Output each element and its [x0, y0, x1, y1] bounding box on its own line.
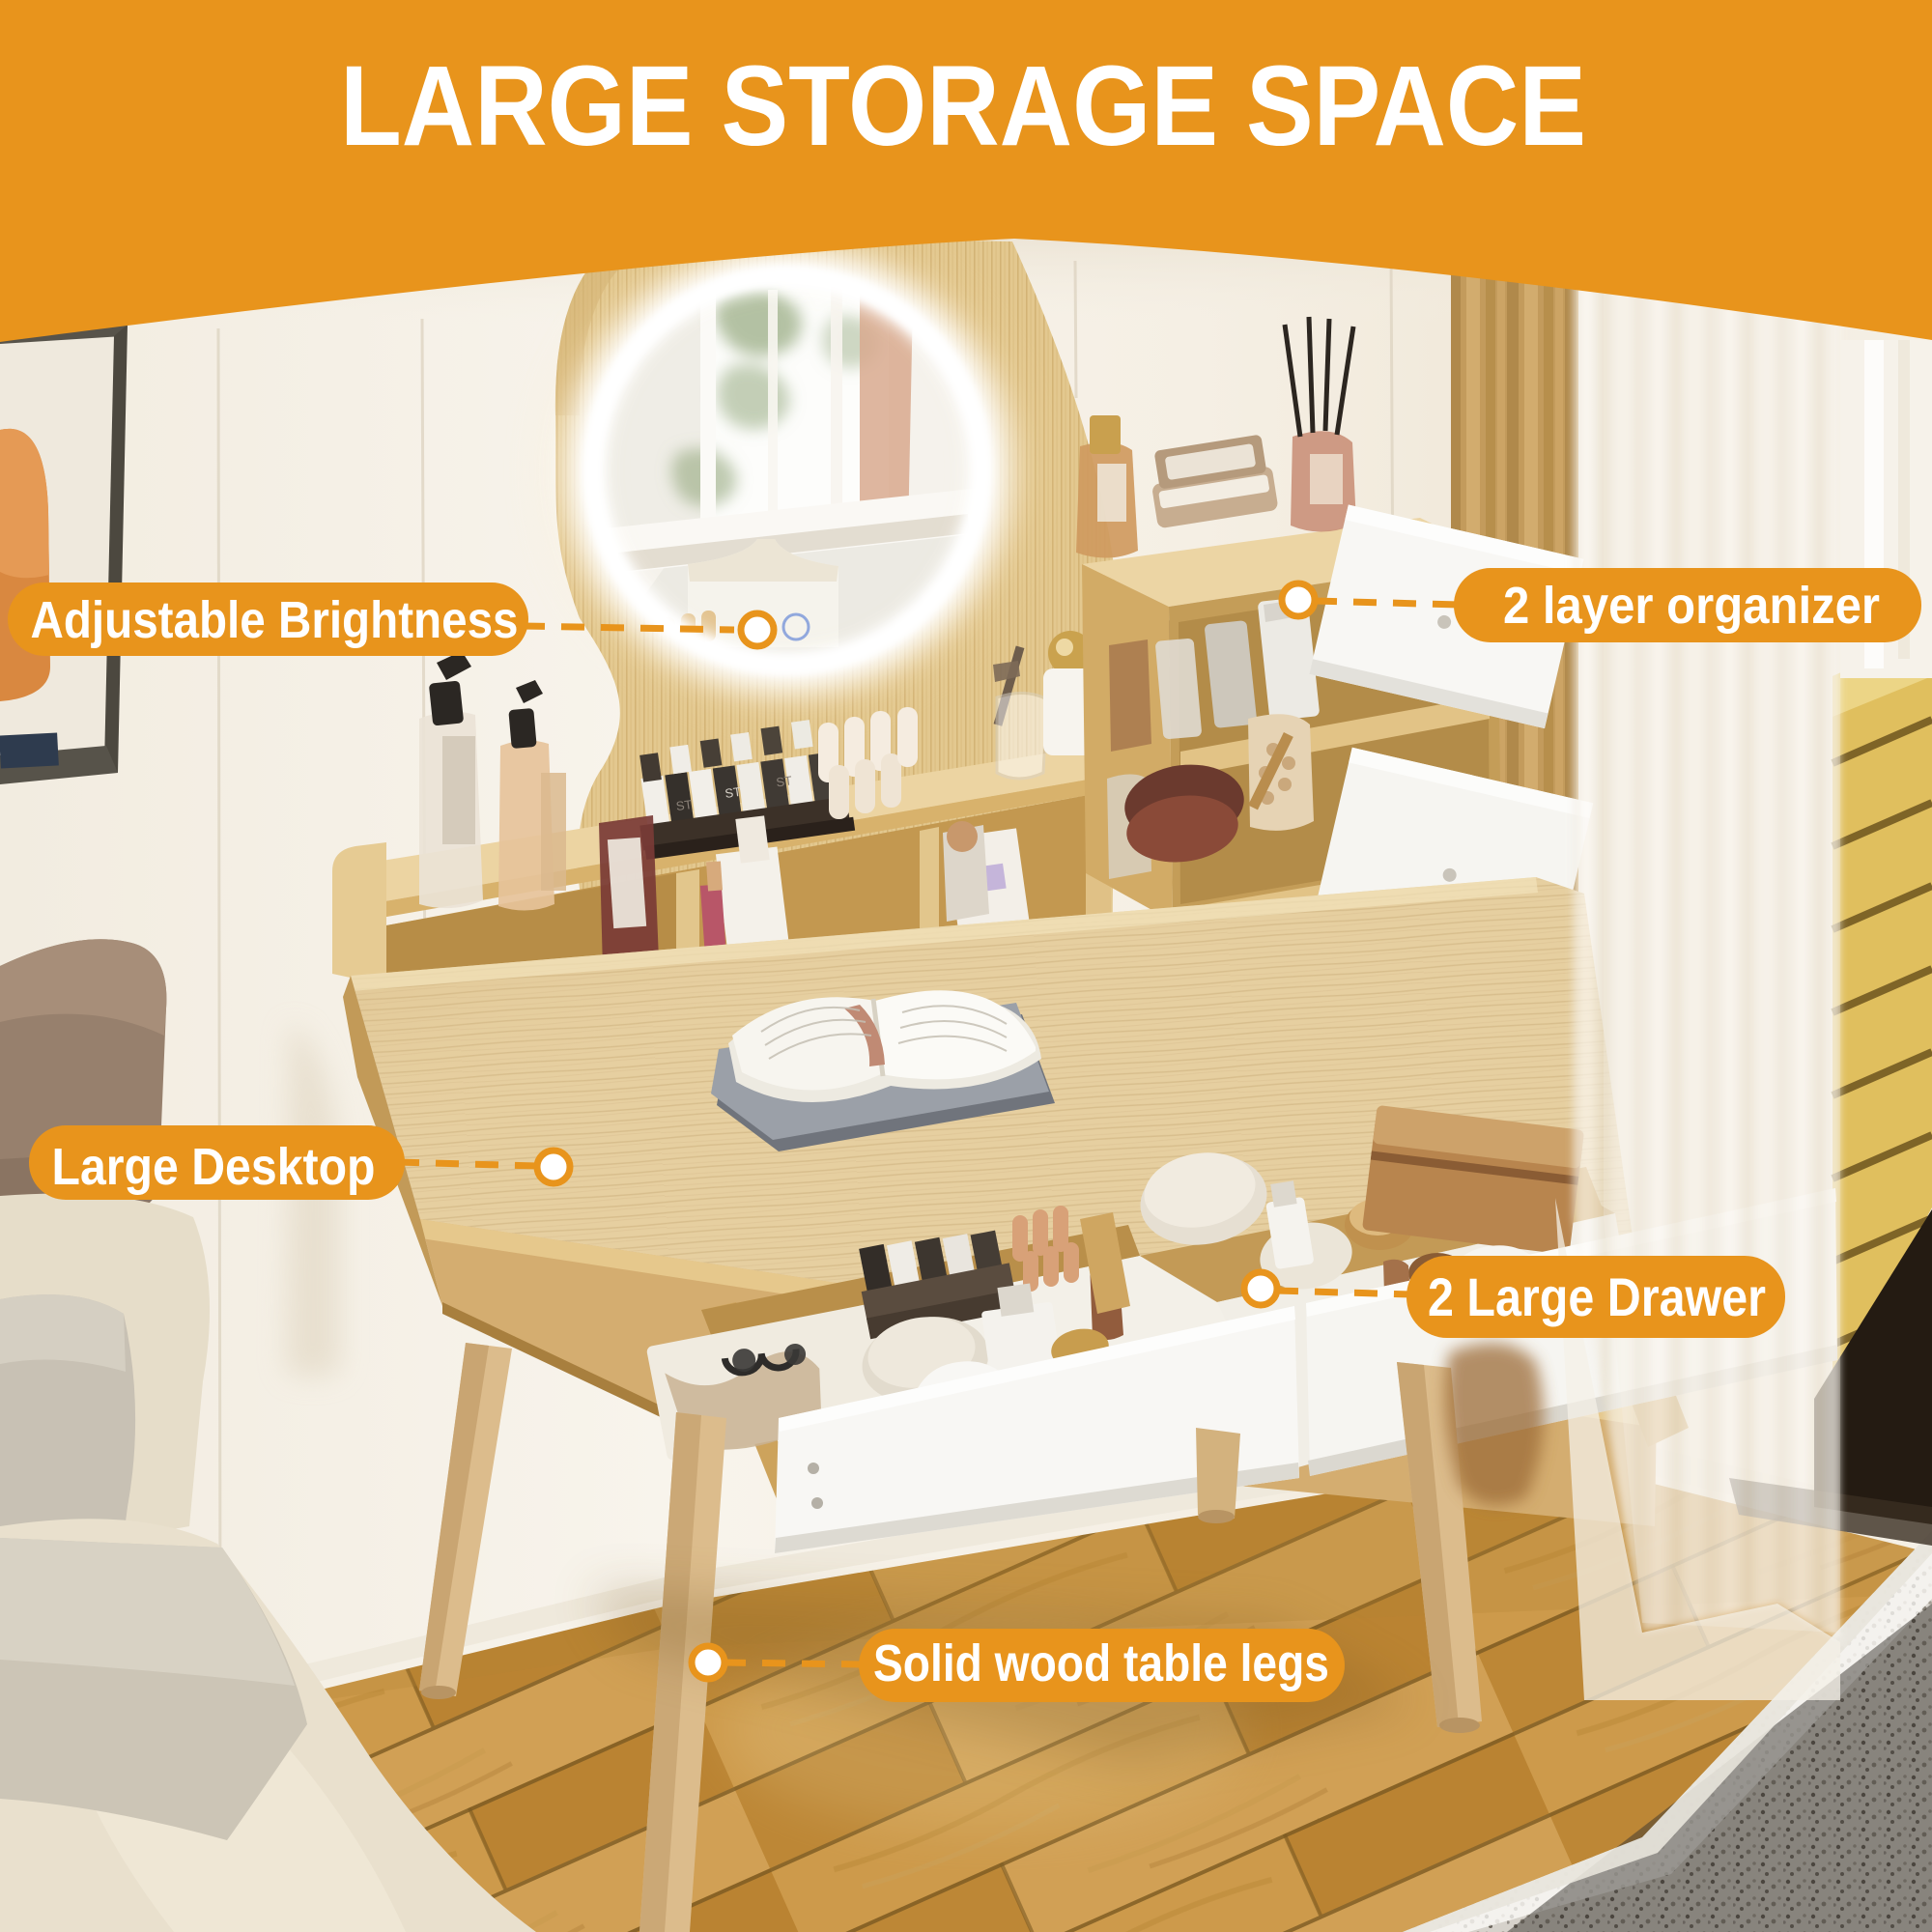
svg-text:2 Large Drawer: 2 Large Drawer: [1428, 1266, 1766, 1327]
svg-text:Solid wood table legs: Solid wood table legs: [873, 1634, 1329, 1692]
svg-text:2 layer organizer: 2 layer organizer: [1503, 577, 1880, 635]
svg-text:Large Desktop: Large Desktop: [52, 1138, 376, 1196]
svg-text:ST: ST: [675, 797, 694, 813]
svg-text:ST: ST: [775, 773, 793, 789]
svg-text:ST: ST: [724, 784, 742, 801]
svg-text:Adjustable Brightness: Adjustable Brightness: [31, 591, 519, 649]
svg-text:LARGE STORAGE SPACE: LARGE STORAGE SPACE: [340, 43, 1586, 170]
